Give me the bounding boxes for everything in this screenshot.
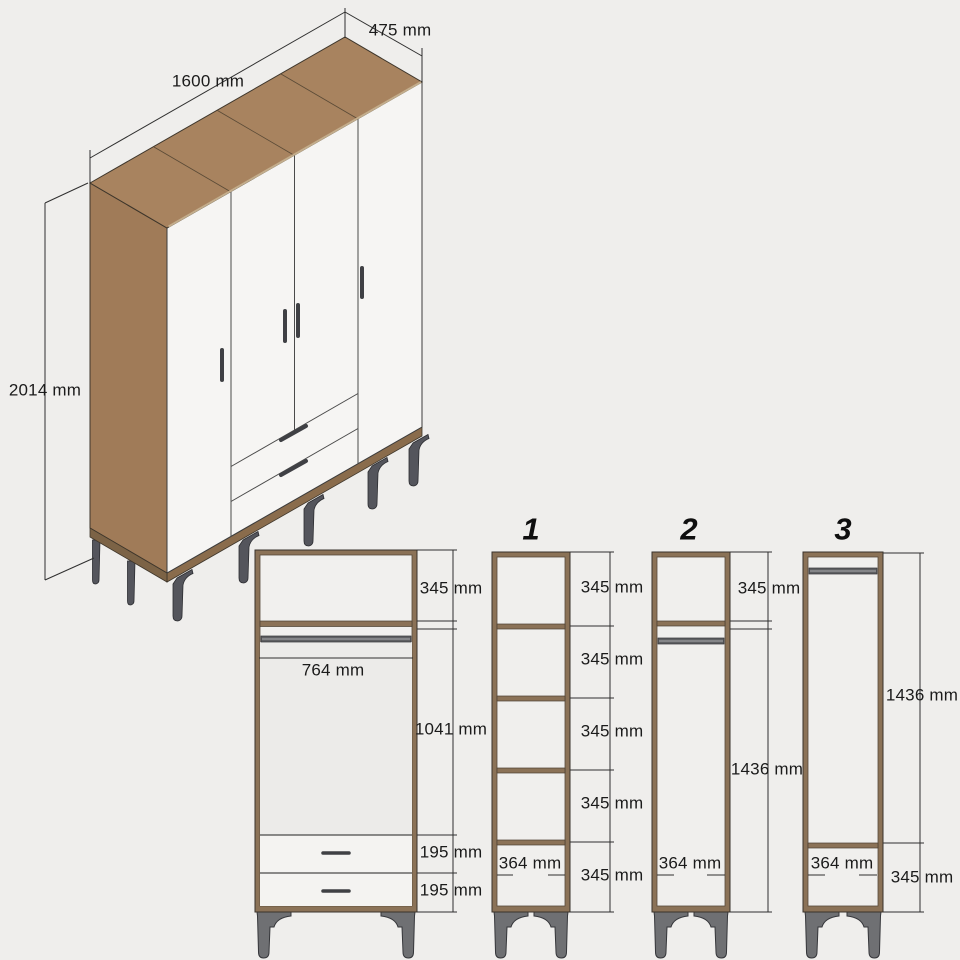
- iso-height-dimension-label: 2014 mm: [9, 382, 81, 401]
- front-view-hanging-rail: [261, 636, 411, 642]
- column-2-open-section-label: 1436 mm: [731, 761, 803, 780]
- front-view-legs: [257, 912, 415, 958]
- column-1-inner-width-label: 364 mm: [499, 855, 562, 874]
- column-3-dimension-chain: [883, 553, 924, 912]
- column-3-legs: [805, 912, 881, 958]
- column-3-diagram: [803, 552, 924, 958]
- column-1-section-4-label: 345 mm: [581, 795, 644, 814]
- column-2-top-section-label: 345 mm: [738, 580, 801, 599]
- drawing-canvas: [0, 0, 960, 960]
- column-2-title: 2: [680, 514, 697, 545]
- column-3-open-section-label: 1436 mm: [886, 687, 958, 706]
- front-view-middle-section-label: 1041 mm: [415, 721, 487, 740]
- column-1-section-1-label: 345 mm: [581, 579, 644, 598]
- front-view-drawer2-label: 195 mm: [420, 882, 483, 901]
- column-3-inner-width-label: 364 mm: [811, 855, 874, 874]
- front-view-shelf: [260, 621, 412, 627]
- column-3-bottom-section-label: 345 mm: [891, 869, 954, 888]
- column-1-title: 1: [522, 514, 539, 545]
- iso-depth-dimension-label: 475 mm: [369, 22, 432, 41]
- column-1-legs: [494, 912, 568, 958]
- column-2-inner-width-label: 364 mm: [659, 855, 722, 874]
- iso-width-dimension-label: 1600 mm: [172, 73, 244, 92]
- column-1-section-5-label: 345 mm: [581, 867, 644, 886]
- iso-side-panel: [90, 183, 167, 573]
- column-3-shelf: [808, 843, 878, 848]
- column-1-section-2-label: 345 mm: [581, 651, 644, 670]
- column-2-dimension-chain: [730, 552, 772, 912]
- front-view-inner-width-label: 764 mm: [302, 662, 365, 681]
- front-view-drawer1-label: 195 mm: [420, 844, 483, 863]
- column-1-section-3-label: 345 mm: [581, 723, 644, 742]
- column-3-hanging-rail: [809, 568, 877, 574]
- front-view-top-section-label: 345 mm: [420, 580, 483, 599]
- column-3-title: 3: [834, 514, 851, 545]
- column-2-shelf: [657, 621, 725, 626]
- front-view-drawer-zone: [260, 835, 412, 906]
- column-2-diagram: [652, 552, 772, 958]
- column-1-diagram: [492, 552, 614, 958]
- technical-drawing: 475 mm 1600 mm 2014 mm 345 mm 764 mm 104…: [0, 0, 960, 960]
- iso-wardrobe: [45, 8, 429, 621]
- column-2-legs: [654, 912, 728, 958]
- column-2-hanging-rail: [658, 638, 724, 644]
